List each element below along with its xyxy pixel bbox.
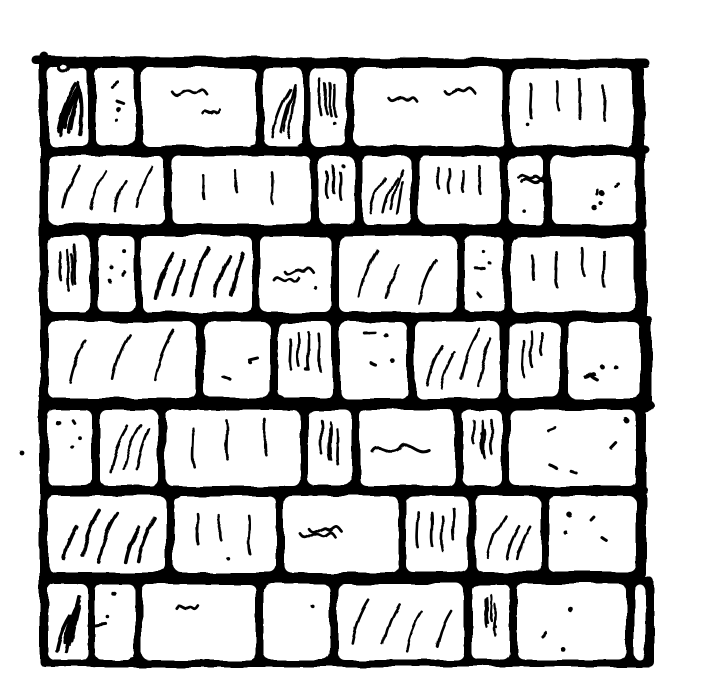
brick <box>419 156 501 224</box>
brick-texture-mark <box>624 418 630 424</box>
brick-texture-mark <box>484 430 485 459</box>
brick-texture-mark <box>74 245 75 284</box>
brick-texture-mark <box>600 191 606 197</box>
brick <box>166 410 300 486</box>
stray-ink-dot <box>20 451 25 456</box>
ink-blob <box>163 489 181 500</box>
ink-blob <box>127 657 147 667</box>
brick-row-4 <box>40 315 652 406</box>
brick-texture-mark <box>371 364 376 366</box>
right-edge-ink-blob <box>632 485 648 495</box>
brick <box>174 496 276 572</box>
brick-texture-mark <box>124 273 126 276</box>
ink-blob <box>91 405 104 411</box>
brick <box>548 496 636 572</box>
brick-texture-mark <box>334 167 335 194</box>
brick-texture-mark <box>225 419 226 458</box>
brick-texture-mark <box>560 647 565 652</box>
brick-texture-mark <box>248 360 252 364</box>
ink-blob <box>459 579 475 586</box>
brick-texture-mark <box>477 269 486 270</box>
ink-blob <box>326 231 343 238</box>
brick-texture-mark <box>418 511 419 548</box>
brick <box>634 584 645 660</box>
brick-texture-mark <box>542 333 543 357</box>
brick-texture-mark <box>337 429 338 465</box>
brick-texture-mark <box>305 369 309 373</box>
brick-wall-figure <box>0 0 702 695</box>
brick-texture-mark <box>571 471 576 473</box>
brick <box>260 236 331 312</box>
brick-texture-mark <box>449 169 450 194</box>
ink-blob <box>249 62 267 70</box>
brick-texture-mark <box>332 121 336 125</box>
ink-blob <box>538 571 554 577</box>
brick-texture-mark <box>530 84 531 119</box>
brick <box>142 584 256 660</box>
brick-texture-mark <box>599 201 603 205</box>
brick-texture-mark <box>325 84 326 112</box>
brick <box>508 322 560 398</box>
ink-blob <box>495 222 511 230</box>
brick-texture-mark <box>227 557 231 561</box>
brick-texture-mark <box>122 249 126 253</box>
brick-texture-mark <box>557 82 558 110</box>
brick-texture-mark <box>494 604 495 636</box>
brick-texture-mark <box>341 164 345 168</box>
brick <box>96 68 135 146</box>
brick <box>354 68 503 146</box>
brick-texture-mark <box>601 366 606 371</box>
brick <box>319 156 354 224</box>
brick-texture-mark <box>340 173 341 200</box>
brick-texture-mark <box>523 340 524 376</box>
ink-blob <box>559 317 576 323</box>
brick-texture-mark <box>473 420 474 444</box>
brick-texture-mark <box>462 170 463 192</box>
brick <box>172 156 311 224</box>
brick-texture-mark <box>602 538 606 540</box>
brick <box>518 584 626 660</box>
brick-row-3 <box>40 229 646 319</box>
brick-texture-mark <box>591 517 594 520</box>
ink-blob <box>409 150 422 158</box>
ink-blob <box>451 230 470 239</box>
brick-texture-mark <box>438 168 439 189</box>
ink-blob <box>509 577 524 588</box>
brick-texture-mark <box>566 512 572 518</box>
brick-texture-mark <box>604 251 605 287</box>
brick-texture-mark <box>526 123 530 127</box>
stray-ink-ring <box>60 64 69 73</box>
brick-texture-mark <box>249 516 250 554</box>
brick <box>142 68 256 146</box>
brick-texture-mark <box>312 606 316 610</box>
brick-texture-mark <box>95 624 106 626</box>
ink-blob <box>496 404 514 413</box>
brick-texture-mark <box>107 278 111 282</box>
brick-texture-mark <box>391 359 396 364</box>
brick-texture-mark <box>579 79 580 119</box>
brick-texture-mark <box>329 83 330 115</box>
ink-blob <box>296 62 312 70</box>
brick <box>510 410 636 486</box>
brick-texture-mark <box>441 515 442 550</box>
brick-row-5 <box>40 403 646 494</box>
brick-texture-mark <box>193 428 194 467</box>
brick <box>362 156 411 224</box>
ink-blob <box>348 404 361 412</box>
brick-row-6 <box>40 489 646 579</box>
brick <box>264 584 330 660</box>
ink-blob <box>251 658 266 666</box>
brick-texture-mark <box>319 334 320 370</box>
brick-row-7 <box>40 577 654 668</box>
brick-texture-mark <box>478 165 479 193</box>
ink-blob <box>156 403 174 413</box>
ink-blob <box>541 149 552 160</box>
brick <box>476 496 540 572</box>
ink-blob <box>501 229 516 238</box>
brick-texture-mark <box>60 252 61 280</box>
brick-texture-mark <box>313 285 317 289</box>
ink-blob <box>296 403 309 413</box>
ink-blob <box>348 150 363 159</box>
brick-texture-mark <box>556 252 557 287</box>
brick <box>509 156 544 224</box>
ink-blob <box>195 315 208 326</box>
brick <box>552 156 636 224</box>
ink-blob <box>276 490 289 499</box>
ink-blob <box>194 396 212 404</box>
brick <box>340 322 407 398</box>
ink-blob <box>497 149 516 159</box>
brick-texture-mark <box>490 263 493 266</box>
brick-texture-mark <box>483 251 486 254</box>
brick-row-2 <box>40 149 646 232</box>
brick-texture-mark <box>328 173 329 199</box>
brick-texture-mark <box>614 365 619 370</box>
ink-blob <box>161 570 178 577</box>
brick-texture-mark <box>431 512 432 546</box>
brick <box>310 68 346 146</box>
brick-texture-mark <box>330 422 331 460</box>
ink-blob <box>455 405 468 411</box>
brick-texture-mark <box>197 513 198 544</box>
brick <box>48 156 164 224</box>
brick <box>264 68 303 146</box>
brick <box>278 322 332 398</box>
brick-texture-mark <box>106 615 110 619</box>
ink-blob <box>505 61 515 71</box>
brick-texture-mark <box>72 256 73 285</box>
brick-texture-mark <box>68 251 69 291</box>
brick-texture-mark <box>490 595 491 621</box>
brick <box>415 322 500 398</box>
brick-texture-mark <box>319 79 320 114</box>
ink-blob <box>619 579 636 586</box>
brick-texture-mark <box>592 205 598 211</box>
brick-texture-mark <box>79 437 83 441</box>
ink-blob <box>257 578 269 586</box>
ink-blob <box>554 396 572 404</box>
ink-blob <box>397 490 407 499</box>
brick <box>204 322 270 398</box>
ink-blob <box>464 657 476 667</box>
ink-blob <box>312 149 322 158</box>
brick-texture-mark <box>56 421 61 426</box>
brick-texture-mark <box>568 607 573 612</box>
brick-texture-mark <box>582 249 583 275</box>
brick-wall-illustration <box>0 0 702 695</box>
brick-texture-mark <box>236 172 237 193</box>
brick-texture-mark <box>486 597 487 622</box>
ink-blob <box>248 230 262 239</box>
brick <box>98 236 135 312</box>
brick-texture-mark <box>249 358 257 360</box>
brick <box>464 236 503 312</box>
brick-row-1 <box>40 61 644 154</box>
brick-texture-mark <box>290 340 291 370</box>
ink-blob <box>505 658 522 667</box>
brick-texture-mark <box>523 210 527 214</box>
ink-blob <box>135 61 146 71</box>
brick-texture-mark <box>334 85 335 116</box>
ink-blob <box>308 223 324 230</box>
brick-texture-mark <box>482 420 483 453</box>
brick <box>339 236 456 312</box>
brick-texture-mark <box>74 421 76 424</box>
brick-texture-mark <box>604 87 605 121</box>
brick-texture-mark <box>115 106 120 111</box>
brick-texture-mark <box>112 592 117 597</box>
brick-texture-mark <box>109 265 113 269</box>
brick-texture-mark <box>452 507 453 540</box>
ink-blob <box>498 396 510 404</box>
brick-texture-mark <box>564 531 568 535</box>
right-edge-ink-blob <box>633 399 655 413</box>
ink-blob <box>328 579 346 585</box>
ink-blob <box>325 658 337 666</box>
ink-blob <box>161 151 177 157</box>
brick-texture-mark <box>320 420 321 454</box>
ink-blob <box>274 571 291 578</box>
brick-texture-mark <box>202 174 203 198</box>
brick-texture-mark <box>480 432 484 436</box>
ink-blob <box>82 578 99 586</box>
right-edge-ink-blob <box>634 145 650 155</box>
brick <box>48 410 92 486</box>
brick-texture-mark <box>491 420 492 454</box>
brick-texture-mark <box>70 444 74 448</box>
brick-texture-mark <box>265 420 266 455</box>
brick <box>406 496 468 572</box>
brick-texture-mark <box>272 173 273 204</box>
brick-texture-mark <box>493 625 497 629</box>
brick-texture-mark <box>114 118 118 122</box>
brick-texture-mark <box>383 332 388 337</box>
brick-texture-mark <box>308 332 309 370</box>
ink-blob <box>89 657 100 667</box>
brick <box>568 322 640 398</box>
wall-drawing <box>20 56 655 667</box>
brick-texture-mark <box>298 333 299 367</box>
brick-texture-mark <box>615 183 618 185</box>
brick-texture-mark <box>220 516 221 540</box>
brick-texture-mark <box>532 256 533 280</box>
brick <box>511 236 634 312</box>
brick-texture-mark <box>531 331 532 367</box>
